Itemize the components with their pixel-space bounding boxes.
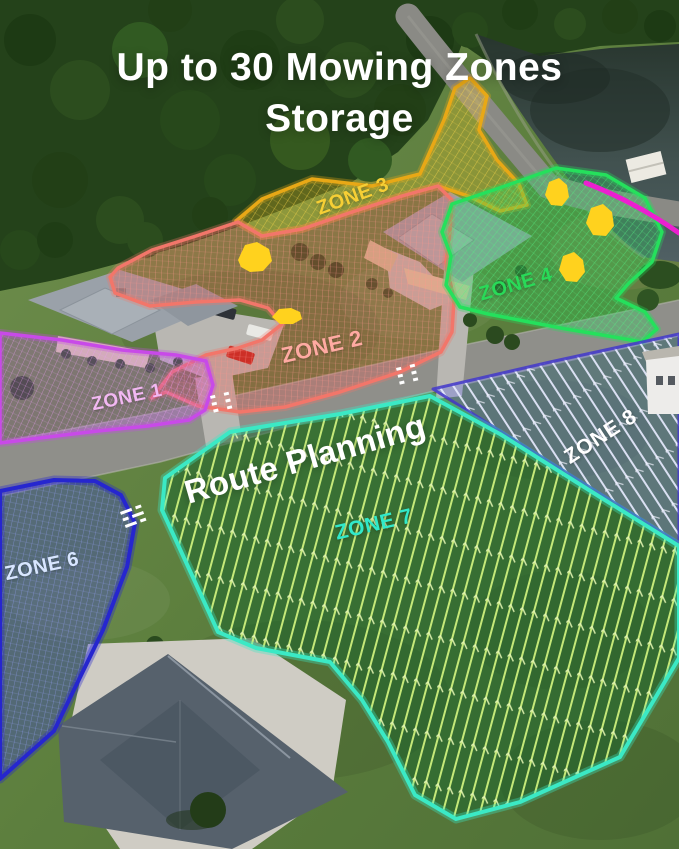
aerial-mowing-zones-image: Up to 30 Mowing Zones Storage Route Plan… bbox=[0, 0, 679, 849]
headline-line-2: Storage bbox=[0, 93, 679, 144]
headline-line-1: Up to 30 Mowing Zones bbox=[0, 42, 679, 93]
headline: Up to 30 Mowing Zones Storage bbox=[0, 42, 679, 145]
